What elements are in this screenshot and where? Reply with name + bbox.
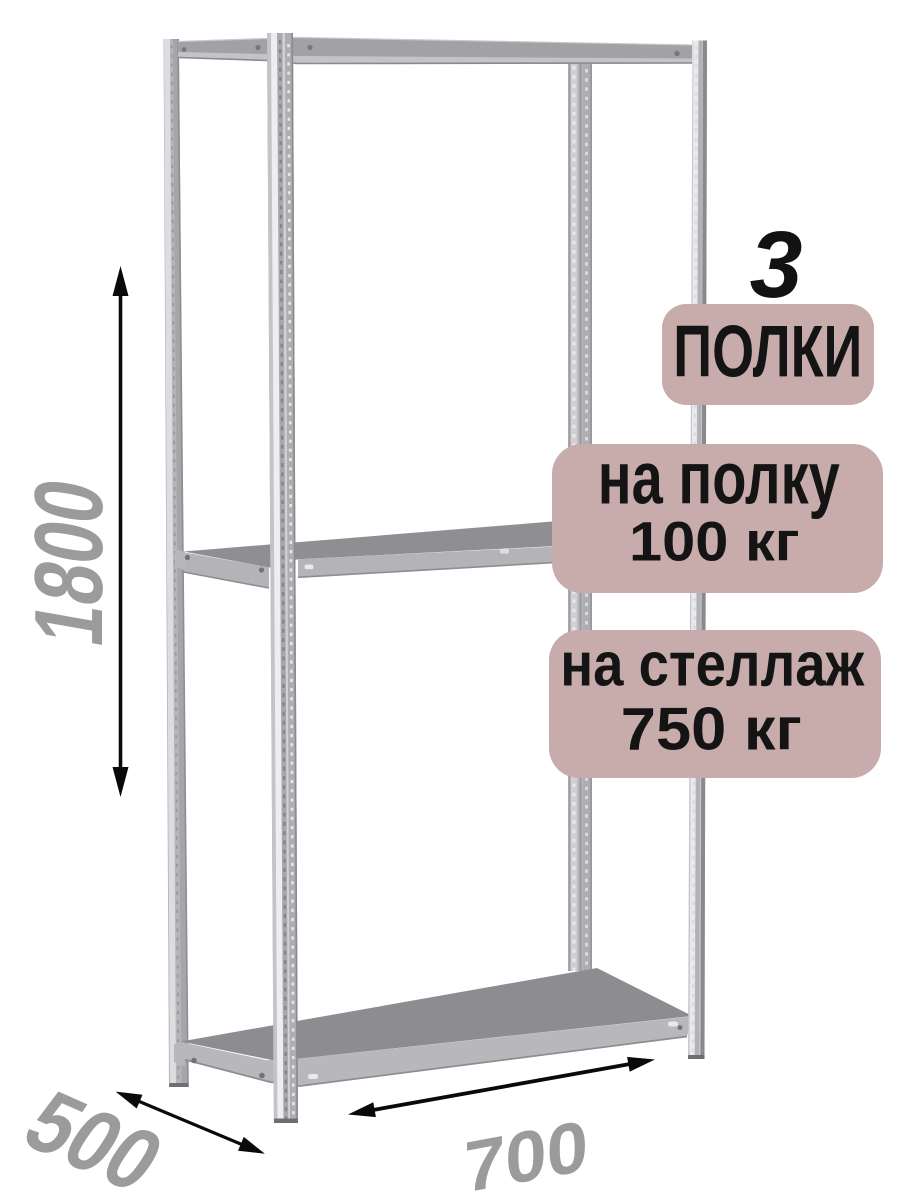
svg-text:ПОЛКИ: ПОЛКИ — [673, 312, 862, 393]
svg-text:100 кг: 100 кг — [629, 509, 800, 572]
svg-text:750 кг: 750 кг — [621, 696, 802, 763]
svg-text:1800: 1800 — [15, 471, 123, 653]
svg-text:на полку: на полку — [598, 437, 840, 520]
svg-text:на стеллаж: на стеллаж — [560, 630, 865, 699]
svg-text:3: 3 — [750, 212, 803, 318]
